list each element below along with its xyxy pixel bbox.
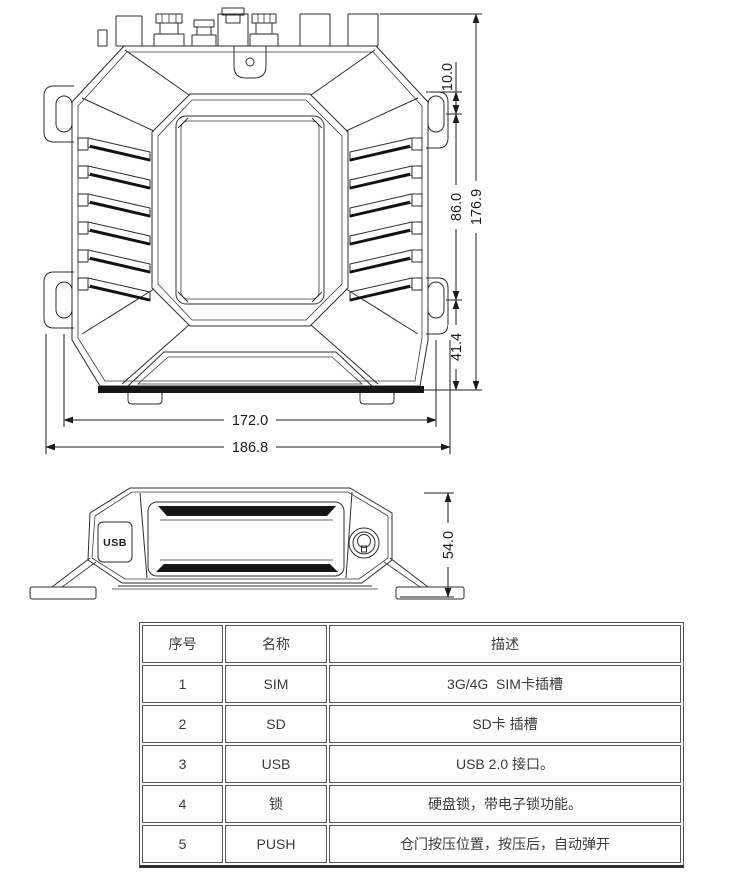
cell-name: PUSH [225, 825, 327, 863]
cell-name: USB [225, 745, 327, 783]
bottom-recess-inner [138, 357, 362, 384]
antenna-connectors [98, 8, 378, 46]
table-row: 4 锁 硬盘锁，带电子锁功能。 [142, 785, 681, 823]
dimension-label-86: 86.0 [449, 193, 465, 221]
cell-no: 1 [142, 665, 223, 703]
header-cell-name: 名称 [225, 625, 327, 663]
foot-tab-left [128, 393, 162, 404]
cell-desc: 仓门按压位置，按压后，自动弹开 [329, 825, 681, 863]
cell-desc: 硬盘锁，带电子锁功能。 [329, 785, 681, 823]
cell-desc: SD卡 插槽 [329, 705, 681, 743]
table-row: 1 SIM 3G/4G SIM卡插槽 [142, 665, 681, 703]
datasheet-page: 10.0 86.0 41.4 176.9 [0, 0, 750, 874]
dimension-label-10: 10.0 [440, 63, 456, 91]
dimension-label-41: 41.4 [449, 333, 465, 361]
technical-drawing: 10.0 86.0 41.4 176.9 [0, 0, 750, 620]
table-header-row: 序号 名称 描述 [142, 625, 681, 663]
cell-name: SD [225, 705, 327, 743]
hdd-door-inner [181, 121, 319, 299]
mounting-ears [44, 86, 448, 334]
bottom-strip [98, 386, 424, 393]
top-view-drawing [44, 8, 448, 404]
cell-name: 锁 [225, 785, 327, 823]
dimension-label-176: 176.9 [469, 189, 485, 225]
table-row: 5 PUSH 仓门按压位置，按压后，自动弹开 [142, 825, 681, 863]
vent-fins [78, 138, 422, 301]
dimension-label-172: 172.0 [232, 413, 268, 429]
cell-desc: 3G/4G SIM卡插槽 [329, 665, 681, 703]
front-top-dark-band [158, 506, 336, 516]
hdd-door [176, 116, 324, 304]
body-outline [72, 46, 428, 386]
inner-panel-inner [158, 100, 342, 320]
usb-label: USB [103, 537, 127, 549]
front-view-drawing: USB [30, 488, 464, 599]
front-foot-left [30, 587, 96, 599]
spec-table: 序号 名称 描述 1 SIM 3G/4G SIM卡插槽 2 SD SD卡 插槽 … [139, 622, 684, 868]
table-row: 2 SD SD卡 插槽 [142, 705, 681, 743]
cell-no: 4 [142, 785, 223, 823]
hdd-lock [349, 528, 379, 558]
cell-no: 3 [142, 745, 223, 783]
front-view-dimensions: 54.0 [400, 493, 457, 597]
dimension-label-54: 54.0 [441, 531, 457, 559]
lock-tab [234, 46, 266, 78]
cell-name: SIM [225, 665, 327, 703]
foot-tab-right [360, 393, 394, 404]
body-outline-inner [78, 52, 422, 381]
door-corner-ticks [178, 118, 322, 302]
header-cell-desc: 描述 [329, 625, 681, 663]
dimension-label-186: 186.8 [232, 440, 268, 456]
cell-no: 2 [142, 705, 223, 743]
cell-no: 5 [142, 825, 223, 863]
table-row: 3 USB USB 2.0 接口。 [142, 745, 681, 783]
tab-hole [246, 58, 254, 66]
front-bottom-dark-band [156, 564, 338, 572]
cell-desc: USB 2.0 接口。 [329, 745, 681, 783]
header-cell-no: 序号 [142, 625, 223, 663]
